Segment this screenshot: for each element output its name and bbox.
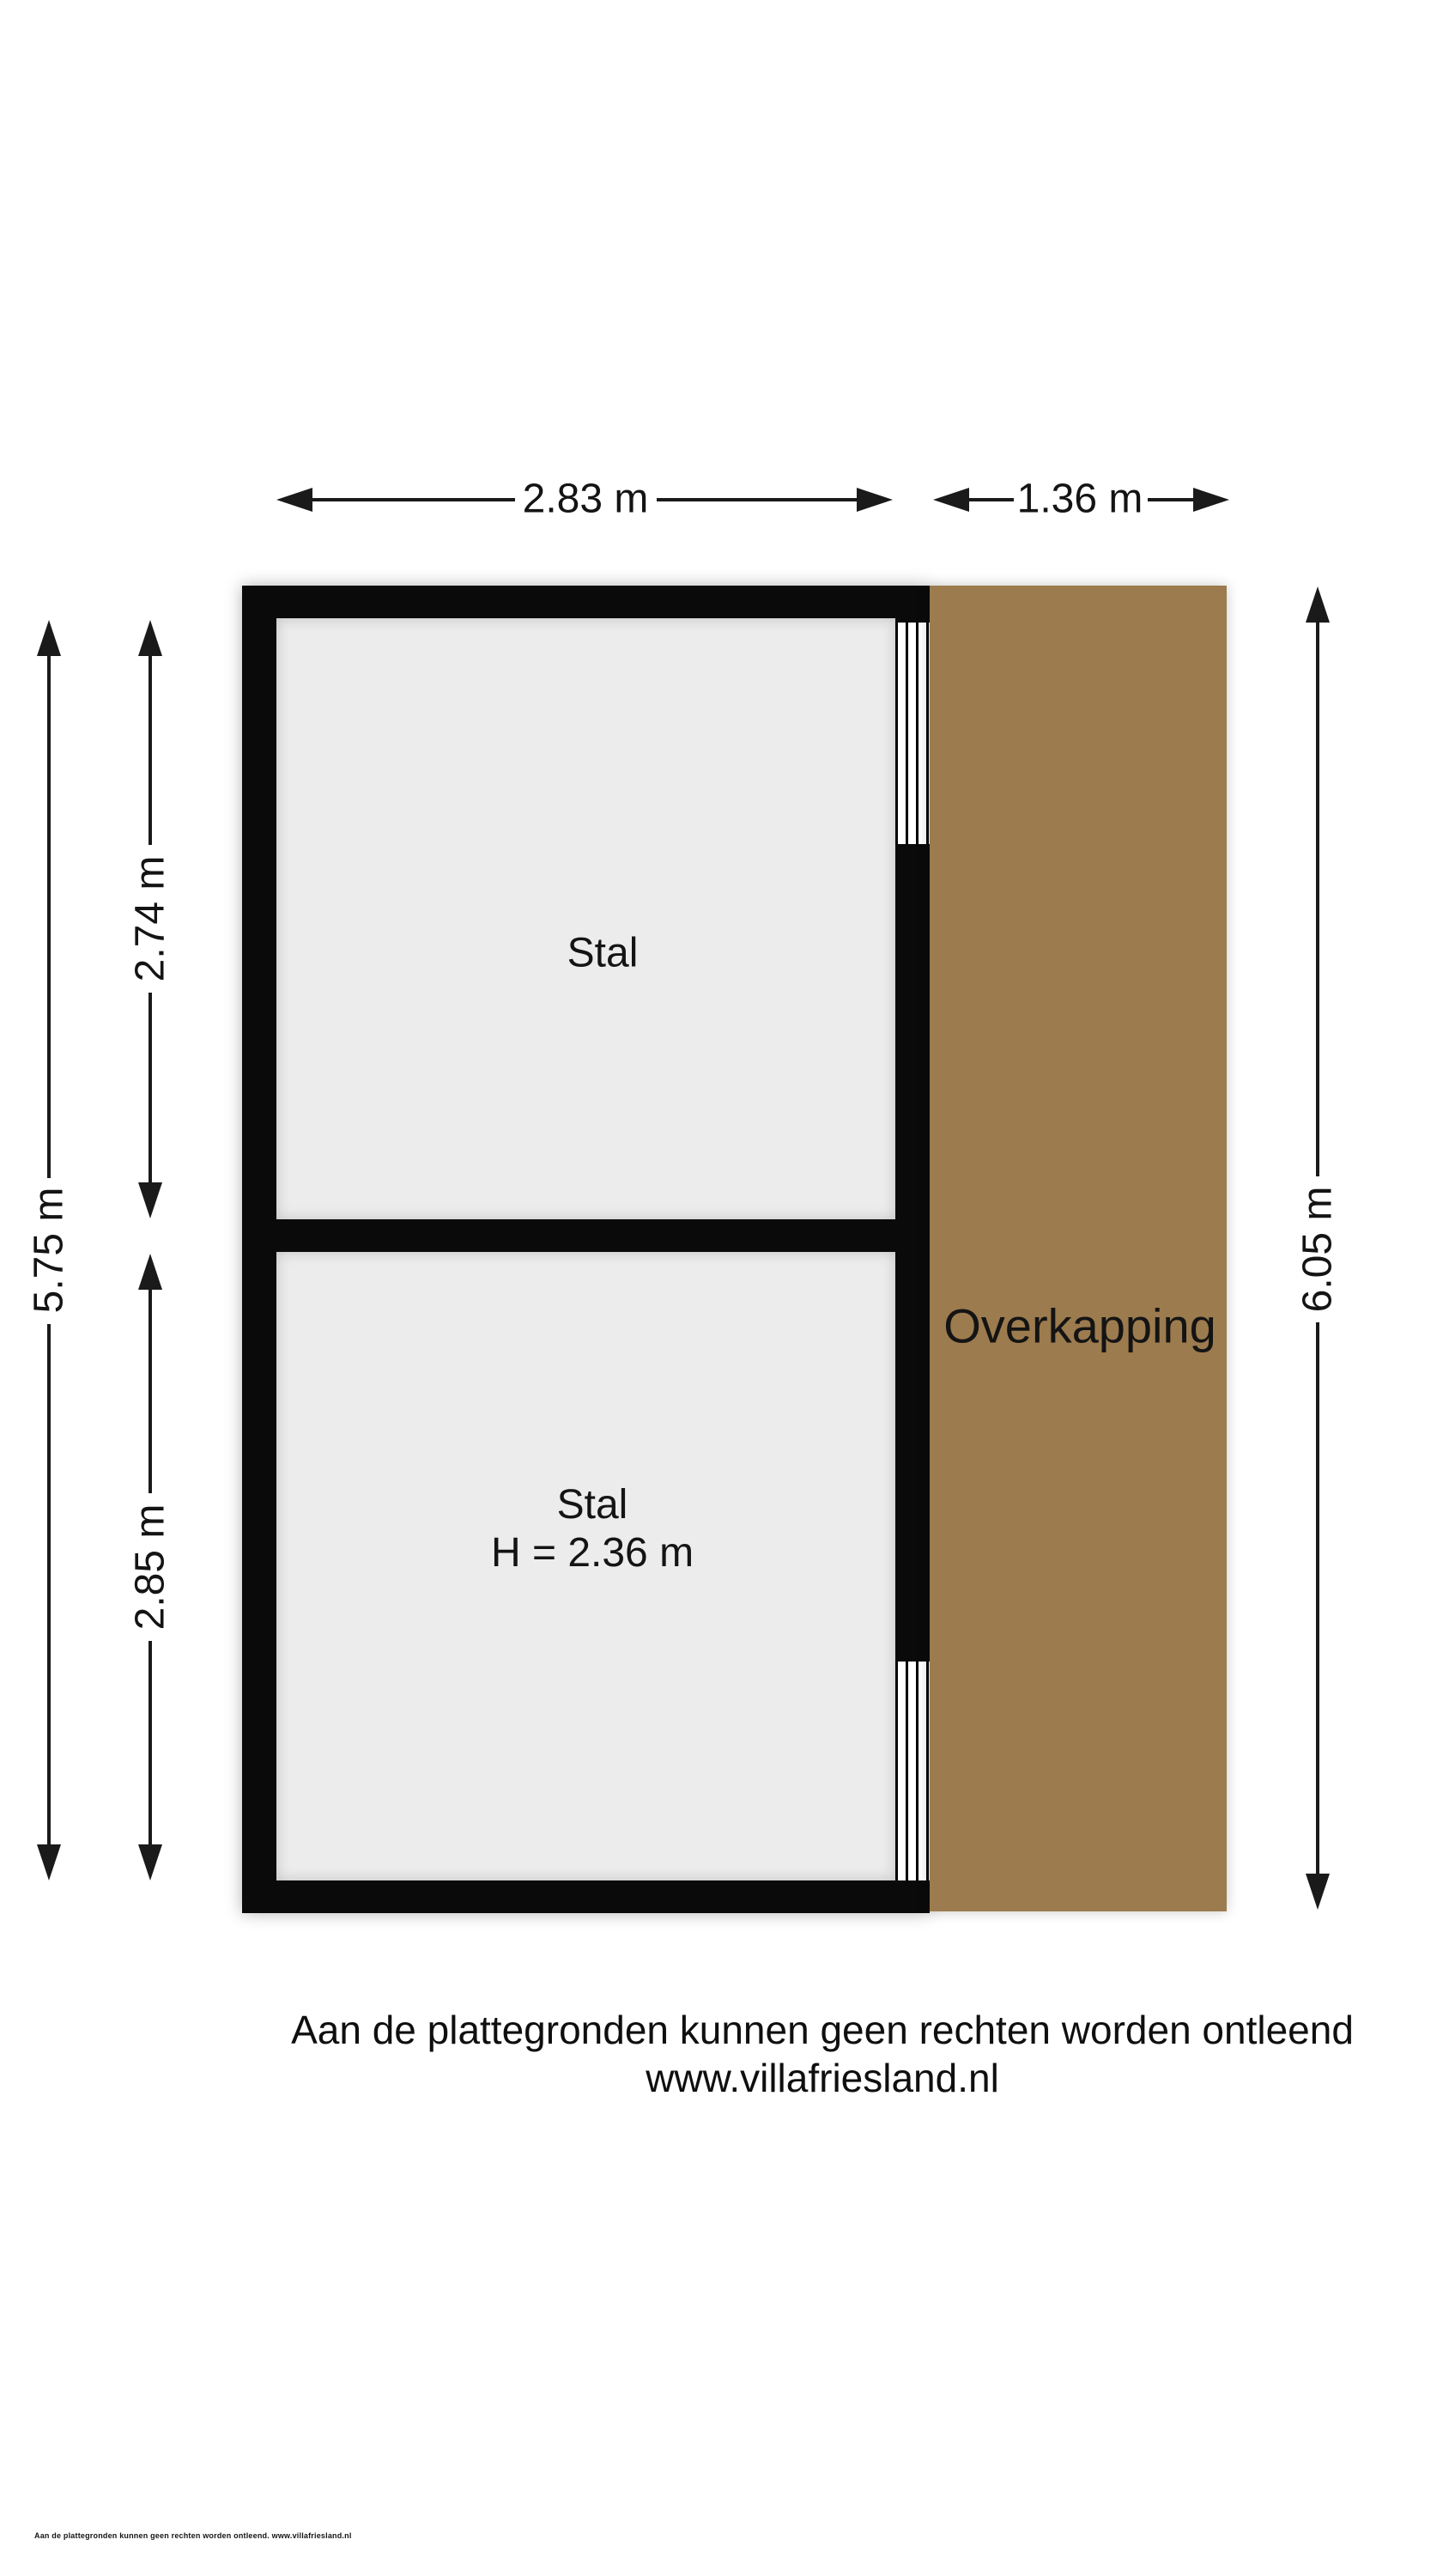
window-lower-icon xyxy=(895,1662,930,1880)
arrowhead-down-icon xyxy=(37,1844,61,1880)
room-label-stal-lower-name: Stal xyxy=(491,1481,694,1529)
arrowhead-right-icon xyxy=(857,488,893,512)
window-upper-icon xyxy=(895,623,930,844)
arrowhead-down-icon xyxy=(138,1182,162,1218)
footer-website: www.villafriesland.nl xyxy=(646,2055,999,2101)
dimension-right-total: 6.05 m xyxy=(1294,1187,1342,1313)
room-label-stal-lower: Stal H = 2.36 m xyxy=(491,1481,694,1577)
arrowhead-up-icon xyxy=(138,620,162,656)
arrowhead-up-icon xyxy=(37,620,61,656)
arrowhead-left-icon xyxy=(933,488,969,512)
overkapping-area xyxy=(930,586,1227,1911)
dimension-left-total: 5.75 m xyxy=(26,1188,73,1314)
micro-disclaimer: Aan de plattegronden kunnen geen rechten… xyxy=(34,2531,352,2540)
arrowhead-down-icon xyxy=(138,1844,162,1880)
building-outline xyxy=(242,586,930,1913)
dimension-left-lower: 2.85 m xyxy=(127,1504,174,1631)
arrowhead-up-icon xyxy=(138,1254,162,1290)
overkapping-label: Overkapping xyxy=(943,1298,1216,1354)
room-label-stal-upper: Stal xyxy=(567,930,639,977)
room-label-stal-lower-height: H = 2.36 m xyxy=(491,1529,694,1577)
dimension-top-width: 2.83 m xyxy=(523,476,649,523)
arrowhead-left-icon xyxy=(276,488,312,512)
arrowhead-right-icon xyxy=(1193,488,1229,512)
floorplan-canvas: 2.83 m 1.36 m 5.75 m 2.74 m 2.85 m 6.05 … xyxy=(0,0,1449,2576)
footer-disclaimer: Aan de plattegronden kunnen geen rechten… xyxy=(291,2007,1354,2053)
arrowhead-up-icon xyxy=(1306,586,1330,623)
dimension-left-upper: 2.74 m xyxy=(127,856,174,982)
dimension-top-overkapping-width: 1.36 m xyxy=(1017,476,1143,523)
arrowhead-down-icon xyxy=(1306,1874,1330,1910)
room-stal-upper xyxy=(276,618,895,1219)
